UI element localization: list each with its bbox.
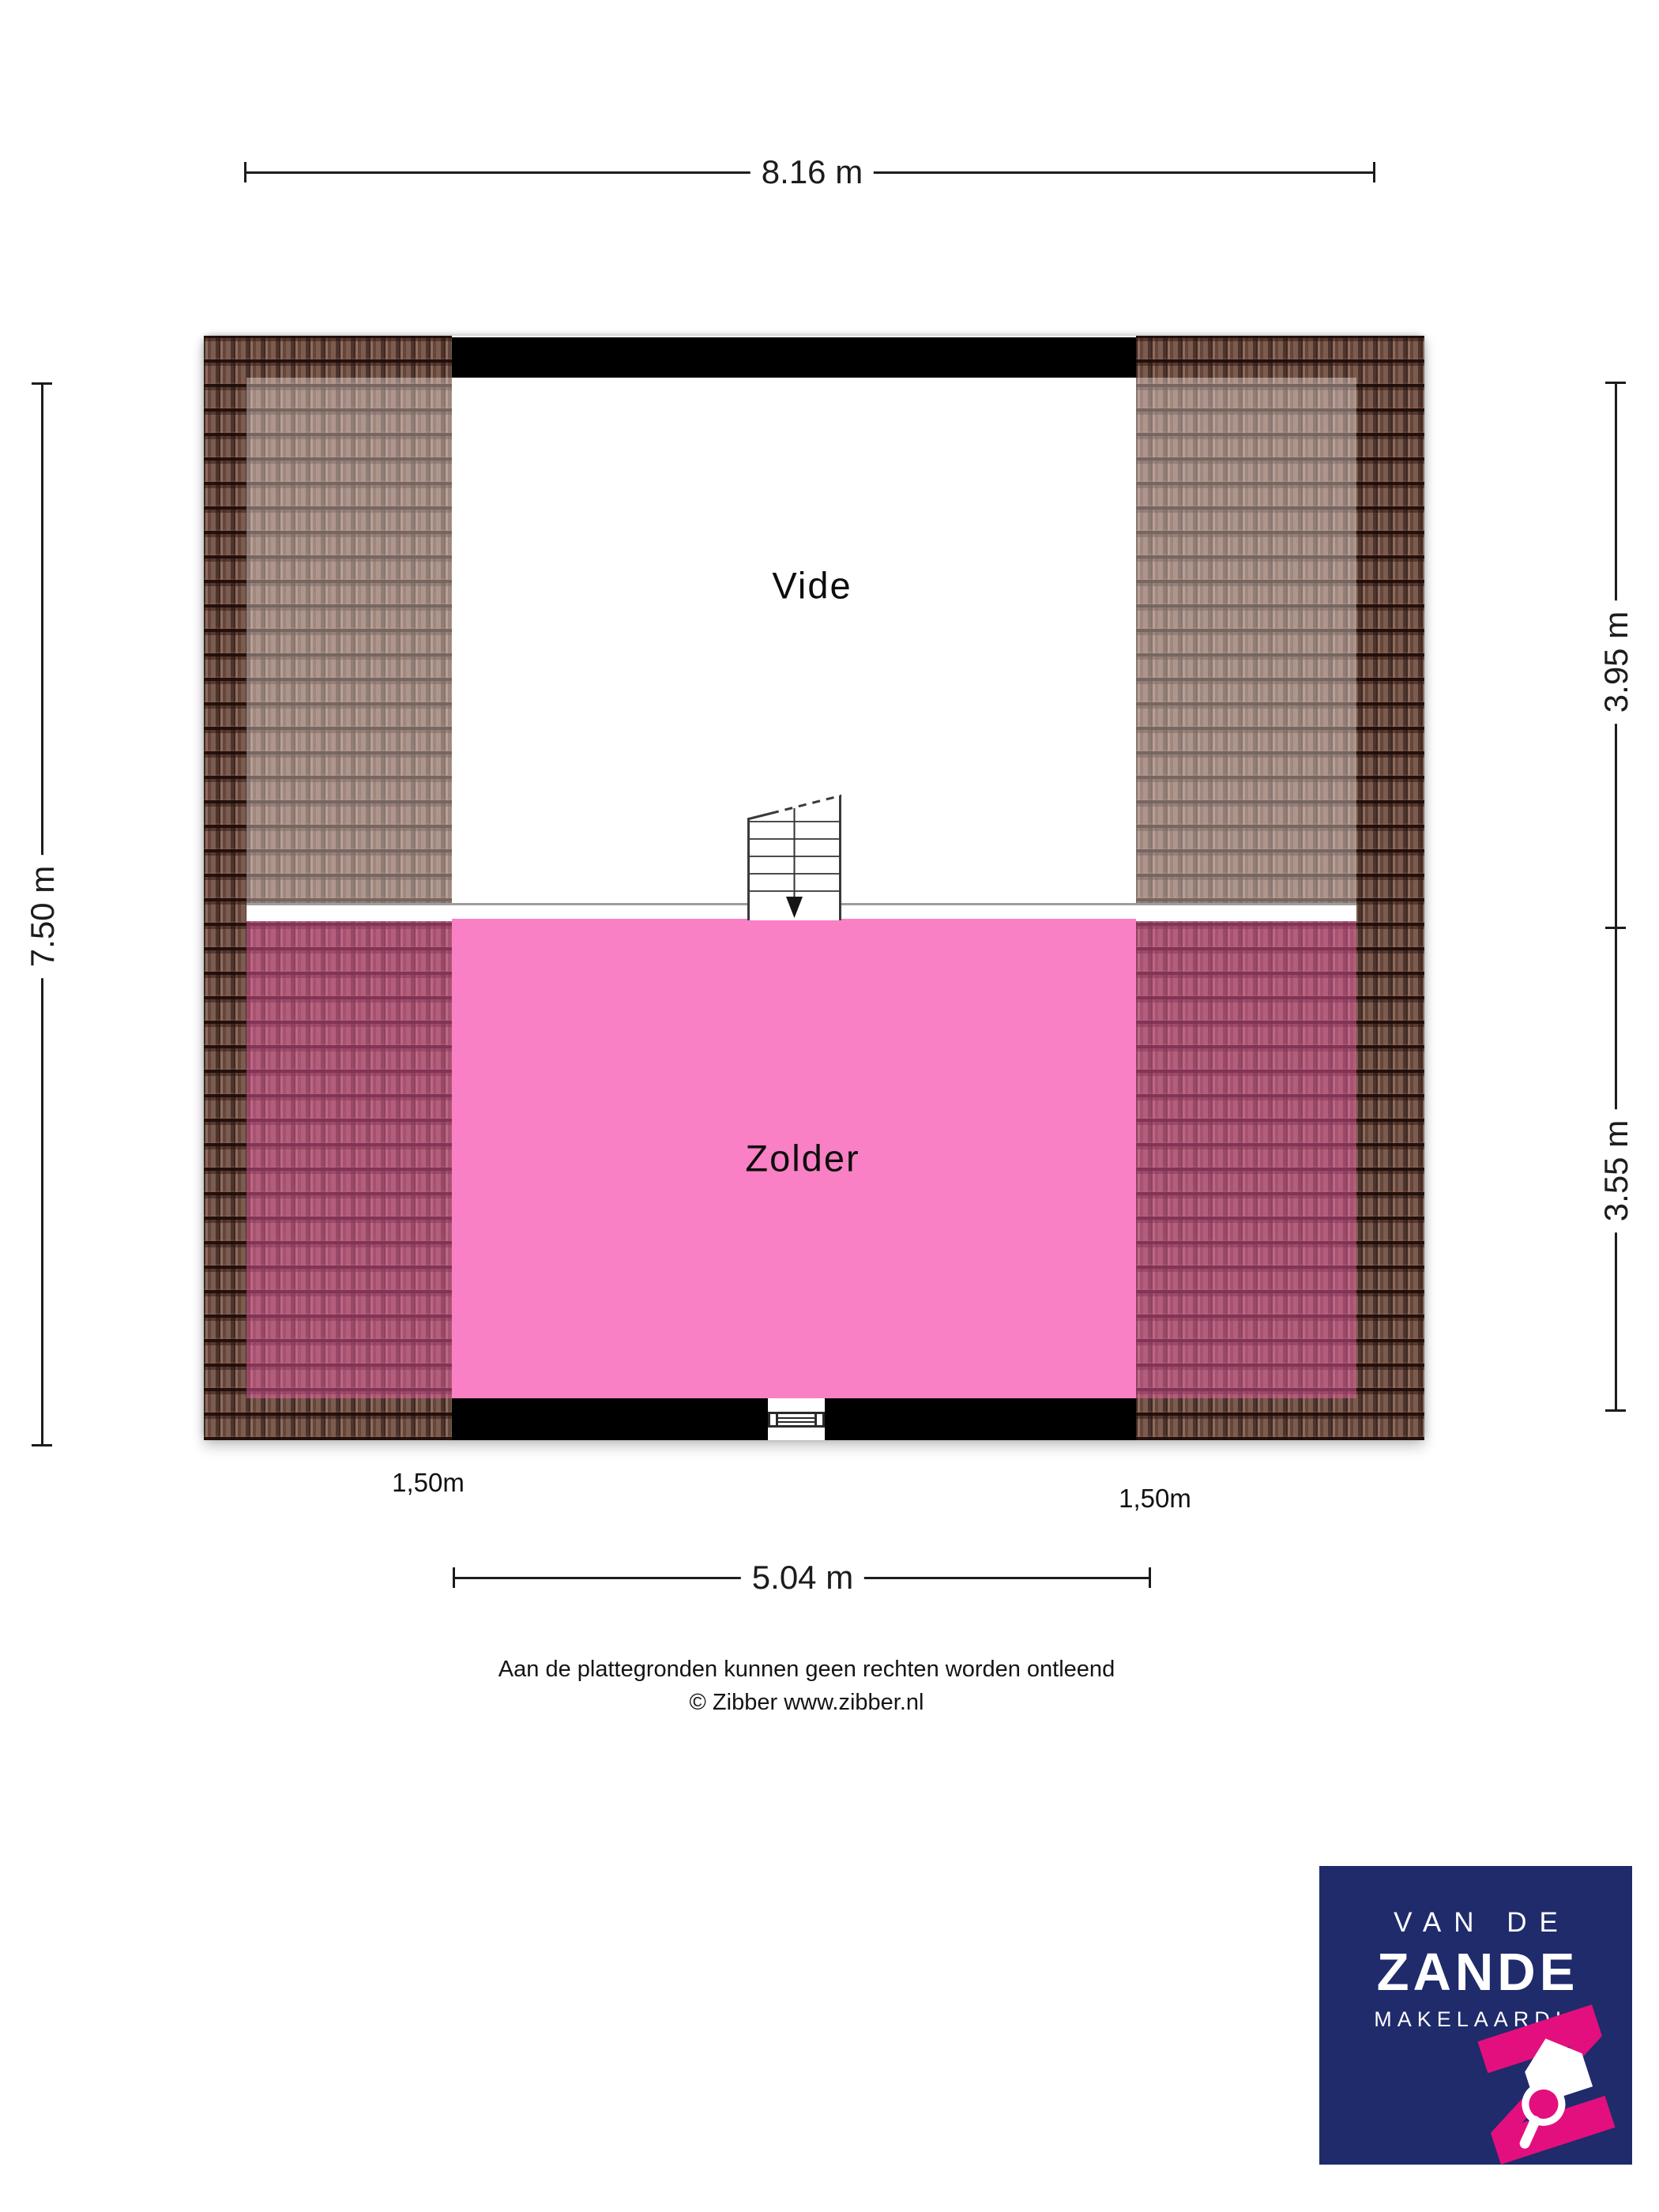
logo-text-van-de: VAN DE bbox=[1319, 1907, 1632, 1939]
window-frame-right bbox=[814, 1414, 822, 1425]
dimension-tick bbox=[1373, 162, 1375, 182]
disclaimer-line-2: © Zibber www.zibber.nl bbox=[690, 1689, 924, 1716]
room-label-vide: Vide bbox=[772, 564, 852, 608]
knee-wall-label-left: 1,50m bbox=[392, 1468, 465, 1498]
dimension-tick bbox=[32, 1444, 52, 1446]
window-glass bbox=[778, 1414, 814, 1425]
wall-bottom-right bbox=[825, 1398, 1136, 1440]
floorplan-page: 8.16 m 7.50 m 3.95 m 3.55 m bbox=[0, 0, 1659, 2212]
dimension-tick bbox=[32, 382, 52, 385]
logo-text-zande: ZANDE bbox=[1319, 1942, 1632, 2003]
wall-bottom-left bbox=[452, 1398, 768, 1440]
dimension-tick bbox=[244, 162, 246, 182]
disclaimer-line-1: Aan de plattegronden kunnen geen rechten… bbox=[498, 1656, 1115, 1683]
roof-tiles-left bbox=[204, 336, 452, 1440]
roof-tiles-right bbox=[1136, 336, 1424, 1440]
dimension-tick bbox=[1149, 1567, 1151, 1588]
dimension-label-overall-depth: 7.50 m bbox=[24, 855, 62, 978]
dimension-label-zolder-width: 5.04 m bbox=[741, 1559, 864, 1597]
building-outline: Vide Zolder bbox=[204, 336, 1424, 1440]
window-icon bbox=[768, 1412, 825, 1428]
dimension-tick bbox=[453, 1567, 455, 1588]
knee-wall-label-right: 1,50m bbox=[1119, 1484, 1191, 1514]
agency-logo: VAN DE ZANDE MAKELAARDIJ bbox=[1319, 1866, 1632, 2165]
dimension-label-vide-depth: 3.95 m bbox=[1597, 600, 1635, 724]
logo-house-magnifier-icon bbox=[1460, 2000, 1632, 2165]
dimension-tick bbox=[1605, 1409, 1626, 1412]
dimension-label-overall-width: 8.16 m bbox=[750, 153, 874, 191]
dimension-tick bbox=[1605, 382, 1626, 384]
wall-top bbox=[452, 337, 1136, 378]
dimension-tick bbox=[1605, 927, 1626, 929]
window-frame-left bbox=[770, 1414, 778, 1425]
stairs-icon bbox=[747, 794, 841, 920]
dimension-label-zolder-depth: 3.55 m bbox=[1597, 1109, 1635, 1232]
room-label-zolder: Zolder bbox=[745, 1137, 860, 1180]
